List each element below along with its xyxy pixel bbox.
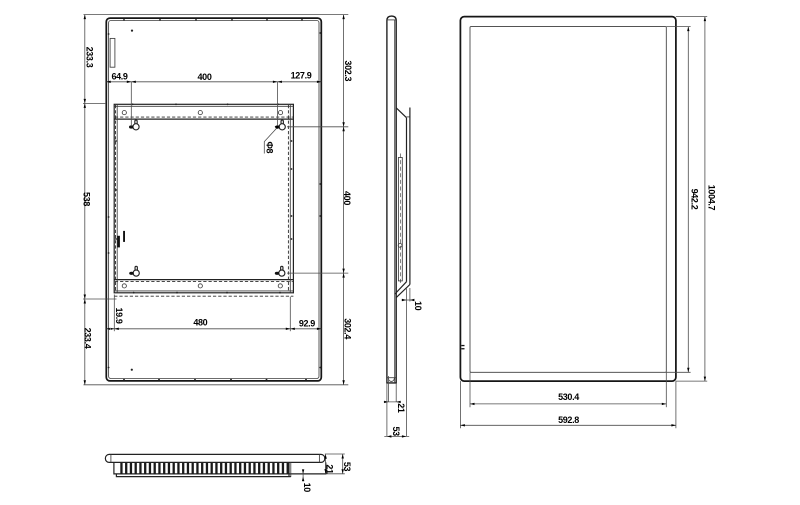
svg-text:302.3: 302.3 <box>343 60 353 81</box>
svg-text:19.9: 19.9 <box>114 307 124 323</box>
svg-text:400: 400 <box>342 191 352 205</box>
svg-text:1004.7: 1004.7 <box>706 185 716 211</box>
svg-text:302.4: 302.4 <box>343 318 353 339</box>
svg-text:400: 400 <box>198 72 212 82</box>
svg-text:480: 480 <box>193 318 207 328</box>
svg-text:10: 10 <box>302 483 312 493</box>
svg-text:21: 21 <box>325 464 335 474</box>
svg-text:21: 21 <box>396 403 406 413</box>
svg-text:10: 10 <box>413 301 423 311</box>
svg-text:53: 53 <box>391 426 401 436</box>
svg-text:530.4: 530.4 <box>558 392 579 402</box>
svg-text:53: 53 <box>342 462 352 472</box>
svg-text:92.9: 92.9 <box>299 319 315 329</box>
svg-text:942.2: 942.2 <box>689 189 699 210</box>
svg-text:233.3: 233.3 <box>85 47 95 68</box>
svg-text:127.9: 127.9 <box>291 71 312 81</box>
svg-text:538: 538 <box>81 192 91 206</box>
svg-text:64.9: 64.9 <box>111 72 127 82</box>
svg-text:592.8: 592.8 <box>558 415 579 425</box>
svg-text:233.4: 233.4 <box>82 328 92 349</box>
svg-text:Φ8: Φ8 <box>264 141 274 153</box>
